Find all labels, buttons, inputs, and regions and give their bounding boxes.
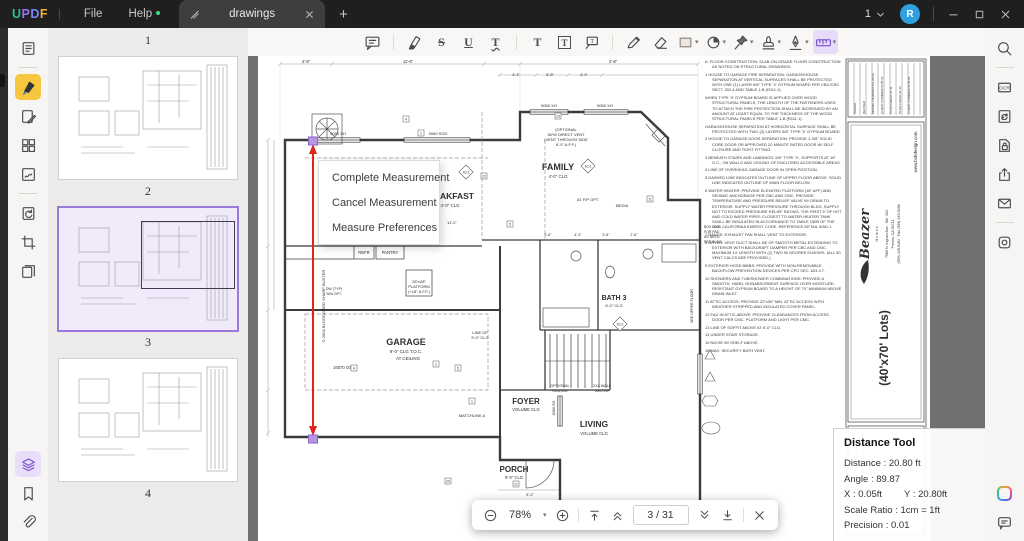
underline-icon: U (460, 34, 477, 51)
pdf-page[interactable]: FAMILY4'-0" CLGBREAKFAST4'-0" CLGGARAGE9… (258, 56, 930, 541)
annotate-icon (20, 79, 37, 96)
capture-icon (996, 234, 1013, 251)
shape-rect-button[interactable]: ▾ (675, 30, 701, 54)
plan-label: 4 (405, 117, 407, 121)
measure-button[interactable]: ▾ (813, 30, 839, 54)
sign-button[interactable] (15, 161, 41, 187)
plan-label: A2.3 (617, 322, 624, 326)
svg-text:T: T (590, 37, 594, 44)
plan-label: PORCH (500, 465, 529, 474)
plan-label: BATH 3 (602, 295, 627, 302)
highlight-button[interactable] (402, 30, 427, 54)
window-close-icon[interactable] (999, 8, 1012, 21)
plan-label: OPTIONAL (550, 384, 569, 388)
plan-note: 14 UNDER STAIR STORAGE. (705, 332, 842, 337)
convert-button[interactable] (15, 200, 41, 226)
plan-label: REFR (358, 250, 369, 255)
dropdown-caret-icon: ▾ (750, 38, 754, 46)
plan-label: DW (TYP) (326, 287, 342, 291)
plan-label: MRDGE TRANSMITTAL 05-22 (871, 73, 875, 114)
plan-note: 2 HOUSE TO GARAGE DOOR SEPARATION: PROVI… (705, 136, 842, 152)
strikethrough-button[interactable]: S (429, 30, 454, 54)
titlebar: UPDF | File Help drawings + 1 R (0, 0, 1024, 28)
plan-label: MEDIA (616, 203, 629, 208)
plan-label: 22 (482, 174, 486, 178)
ai-button[interactable] (992, 480, 1018, 506)
plan-label: A2.3 (585, 164, 592, 168)
logo-letter: P (22, 7, 31, 21)
minimize-icon[interactable] (947, 8, 960, 21)
plan-note: A. FLOOR CONSTRUCTION: SLAB-ON-GRADE FLO… (705, 59, 842, 69)
page-navigation-bar: 78% ▾ 3 / 31 (472, 500, 778, 530)
plan-label: 4 (353, 366, 355, 370)
plan-label: MATCHLINE A (459, 413, 486, 418)
divider (393, 35, 394, 50)
plan-notes-column: A. FLOOR CONSTRUCTION: SLAB-ON-GRADE FLO… (705, 59, 842, 537)
logo-letter: D (30, 7, 40, 21)
page-thumbnail-4[interactable] (59, 359, 237, 481)
plan-label: 4'-0" CLG (549, 174, 569, 179)
measure-icon (815, 34, 832, 51)
plan-label: REVISED (862, 100, 866, 114)
reader-button[interactable] (15, 35, 41, 61)
zoom-level[interactable]: 78% (506, 509, 534, 521)
extract-icon (20, 263, 37, 280)
email-button[interactable] (992, 190, 1018, 216)
capture-button[interactable] (992, 229, 1018, 255)
plan-label: 1 (420, 131, 422, 135)
nav-next-icon[interactable] (697, 508, 712, 523)
divider (19, 67, 37, 68)
divider (743, 508, 744, 522)
plan-label: 2X4 WALL (593, 384, 611, 388)
shape-rect-icon (677, 34, 694, 51)
textbox-icon: T (556, 34, 573, 51)
plan-note: 3 BENEATH STAIRS AND LANDINGS: 5/8" TYPE… (705, 155, 842, 165)
highlight-icon (406, 34, 423, 51)
updf-logo: UPDF (12, 7, 48, 21)
window-edge (0, 28, 8, 541)
pencil-button[interactable] (621, 30, 646, 54)
plan-label: 5'-2" (526, 493, 534, 497)
annotation-toolbar: SUTTTT▾▾▾▾▾▾ (248, 28, 985, 56)
thumbnail-page-number: 3 (145, 335, 151, 350)
dropdown-caret-icon: ▾ (695, 38, 699, 46)
dropdown-caret-icon: ▾ (778, 38, 782, 46)
plan-note: 9 EXTERIOR HOSE BIBBS: PROVIDE WITH NON-… (705, 263, 842, 273)
stamp-button[interactable]: ▾ (758, 30, 784, 54)
plan-label: 4'-4" (512, 72, 521, 77)
plan-label: 9'-0" CLG (471, 335, 488, 340)
plan-label: CLIENT COMMENTS 05-04 (907, 76, 911, 114)
compress-icon (996, 108, 1013, 125)
measure-handle-start[interactable] (309, 137, 318, 145)
plan-label: 3060 SG (552, 400, 556, 415)
layers-icon (20, 456, 37, 473)
protect-button[interactable] (992, 132, 1018, 158)
plan-label: FAMILY (542, 162, 574, 172)
squiggly-button[interactable]: T (483, 30, 508, 54)
textbox-button[interactable]: T (552, 30, 577, 54)
plan-label: 7580 N. Ingram Ave., Ste. 104 (885, 210, 889, 258)
plan-label: 8'-0" CLG (605, 303, 622, 308)
plan-note: 10 SHOWERS AND TUB/SHOWER COMBINATIONS: … (705, 276, 842, 297)
nav-prev-icon[interactable] (610, 508, 625, 523)
scale-ratio-row: Scale Ratio : 1cm = 1ft (844, 505, 985, 516)
plan-label: (40'x70' Lots) (877, 310, 891, 386)
plan-label: 11'-6" (403, 59, 414, 64)
plan-label: 20 (446, 479, 450, 483)
maximize-icon[interactable] (973, 8, 986, 21)
plan-label: 5'-8" (546, 72, 555, 77)
plan-note: 16 MAX. SECURITY BATH VENT. (705, 348, 842, 353)
plan-label: 11 (648, 197, 652, 201)
crop-button[interactable] (15, 229, 41, 255)
note-icon (364, 34, 381, 51)
plan-note: 4 LINE OF OVERHEAD GARAGE DOOR IN OPEN P… (705, 167, 842, 172)
page-number-input[interactable]: 3 / 31 (633, 505, 689, 525)
menu-file[interactable]: File (71, 8, 116, 20)
chevron-down-icon (874, 8, 887, 21)
measurement-context-menu: Complete Measurement Cancel Measurement … (318, 160, 440, 245)
email-icon (996, 195, 1013, 212)
callout-button[interactable]: T (579, 30, 604, 54)
edit-icon (20, 108, 37, 125)
plan-label: (+18" A.F.F.) (408, 289, 430, 294)
attachment-button[interactable] (15, 509, 41, 535)
plan-label: 5060 XO (541, 103, 557, 108)
zoom-dropdown-caret-icon[interactable]: ▾ (543, 511, 547, 519)
bookmark-button[interactable] (15, 480, 41, 506)
extract-button[interactable] (15, 258, 41, 284)
plan-label: 5 (509, 222, 511, 226)
plan-label: RAILING (552, 389, 567, 393)
menu-help[interactable]: Help (115, 8, 165, 20)
shape-circle-button[interactable]: ▾ (703, 30, 729, 54)
plan-label: 5 (457, 366, 459, 370)
xy-row: X : 0.05ftY : 20.80ft (844, 489, 985, 500)
nav-first-icon[interactable] (587, 508, 602, 523)
plan-label: 4'-0" CLG (441, 203, 461, 208)
plan-label: AT CEILING (396, 356, 421, 361)
plan-label: ISSUED (853, 102, 857, 114)
organize-button[interactable] (15, 132, 41, 158)
search-icon (996, 40, 1013, 57)
plan-label: 21 (514, 482, 518, 486)
share-button[interactable] (992, 161, 1018, 187)
plan-label: FOYER (512, 397, 540, 406)
dropdown-caret-icon: ▾ (833, 38, 837, 46)
crop-icon (20, 234, 37, 251)
plan-label: 5060 XO (597, 103, 613, 108)
logo-letter: U (12, 7, 22, 21)
ocr-button[interactable]: OCR (992, 74, 1018, 100)
chat-button[interactable] (992, 509, 1018, 535)
plan-label: PLAN CHECK 07-11 (889, 86, 893, 114)
stamp-icon (760, 34, 777, 51)
plan-label: PANTRY (382, 250, 399, 255)
plan-label: 1 (471, 399, 473, 403)
menu-item-complete-measurement[interactable]: Complete Measurement (319, 165, 439, 190)
nav-last-icon[interactable] (720, 508, 735, 523)
right-sidebar: OCR (985, 28, 1024, 541)
plan-label: 11'-2" (447, 220, 457, 225)
plan-label: 4'-4" (580, 72, 589, 77)
plan-label: 2 (435, 362, 437, 366)
page-thumbnail-2[interactable] (59, 57, 237, 179)
plan-label: 4'-6" (302, 59, 311, 64)
logo-letter: F (40, 7, 48, 21)
plan-note: 12 FAU IN ATTIC ABOVE: PROVIDE CLEARANCE… (705, 312, 842, 322)
plan-note: 8 DRYER: VENT DUCT SHALL BE OF SMOOTH ME… (705, 240, 842, 261)
plan-label: 9'-0" CLG (505, 475, 523, 480)
sign-icon (20, 166, 37, 183)
plan-label: LIVING (580, 419, 609, 429)
plan-label: © 2004 BLOODGOOD SHARP BUSTER (321, 270, 326, 343)
attachment-icon (20, 514, 37, 531)
plan-label: H o m e s (875, 226, 879, 241)
avatar[interactable]: R (900, 4, 920, 24)
divider: | (58, 8, 61, 20)
pencil-icon (625, 34, 642, 51)
edit-button[interactable] (15, 103, 41, 129)
plan-label: 6'-0" A.F.F.) (556, 142, 577, 147)
distance-row: Distance : 20.80 ft (844, 458, 985, 469)
menu-item-measure-preferences[interactable]: Measure Preferences (319, 215, 439, 240)
divider (578, 508, 579, 522)
callout-icon: T (583, 34, 600, 51)
plan-note: 1 HOUSE TO GARAGE FIRE SEPARATION: GARAG… (705, 72, 842, 93)
bookmark-icon (20, 485, 37, 502)
new-tab-button[interactable]: + (339, 6, 348, 23)
organize-icon (20, 137, 37, 154)
window-count-dropdown[interactable]: 1 (865, 8, 887, 21)
plan-label: 4'-3" (574, 233, 582, 237)
plan-label: VOLUME CLG (512, 407, 539, 412)
thumbnail-page-number: 2 (145, 184, 151, 199)
divider (933, 7, 934, 21)
dropdown-caret-icon: ▾ (723, 38, 727, 46)
plan-label: 9'-0" CLG T.O.C. (390, 349, 423, 354)
divider (516, 35, 517, 50)
search-button[interactable] (992, 35, 1018, 61)
svg-text:OCR: OCR (999, 85, 1010, 91)
plan-note: 7 RANGE: EXHAUST FAN SHALL VENT TO EXTER… (705, 232, 842, 237)
plan-label: Fresno, CA 93711 (891, 220, 895, 249)
tab-drawings[interactable]: drawings (179, 0, 325, 28)
tab-icon (188, 8, 201, 21)
dropdown-caret-icon: ▾ (805, 38, 809, 46)
plan-label: CLIENT COMMENTS 05-31 (880, 76, 884, 114)
reader-icon (20, 40, 37, 57)
plan-label: www.bsbdesign.com (913, 131, 918, 172)
divider (996, 67, 1014, 68)
signature-button[interactable]: ▾ (785, 30, 811, 54)
precision-row: Precision : 0.01 (844, 520, 985, 531)
chat-icon (996, 514, 1013, 531)
plan-note: 15 NICHE W/ SHELF ABOVE. (705, 340, 842, 345)
eraser-button[interactable] (648, 30, 673, 54)
plan-label: 3'-8" (602, 233, 610, 237)
plan-label: (559) 449-9494 · Fax (559) 449-9498 (897, 204, 901, 263)
plan-label: 2'-6" (630, 233, 638, 237)
close-icon[interactable] (752, 508, 767, 523)
plan-note: GARAGE/HOUSE SEPARATION AT HORIZONTAL SU… (705, 124, 842, 134)
plan-label: PLAN CHECK 01-13 (898, 86, 902, 114)
underline-button[interactable]: U (456, 30, 481, 54)
divider (612, 35, 613, 50)
squiggly-icon: T (487, 34, 504, 51)
plan-label: AT F/P OPT. (577, 197, 599, 202)
compress-button[interactable] (992, 103, 1018, 129)
left-sidebar (8, 28, 48, 541)
eraser-icon (652, 34, 669, 51)
ocr-icon: OCR (996, 79, 1013, 96)
text-icon: T (529, 34, 546, 51)
plan-label: Beazer (858, 208, 873, 260)
ai-icon (996, 485, 1013, 502)
document-canvas[interactable]: FAMILY4'-0" CLGBREAKFAST4'-0" CLGGARAGE9… (248, 56, 985, 541)
plan-label: W/A OPT. (326, 292, 342, 296)
thumbnail-panel: 1234 (48, 28, 248, 541)
tab-close-icon[interactable] (303, 8, 316, 21)
pin-button[interactable]: ▾ (730, 30, 756, 54)
distance-measurement-line[interactable] (309, 137, 318, 443)
layers-button[interactable] (15, 451, 41, 477)
plan-label: 23 (556, 114, 560, 118)
plan-label: BELOW (595, 389, 609, 393)
plan-label: 5050 SH (330, 131, 346, 136)
measure-handle-end[interactable] (309, 435, 318, 443)
plan-label: VOLUME CLG (580, 431, 607, 436)
plan-note: 13 LINE OF SOFFIT ABOVE AT 8'-0" CLG. (705, 325, 842, 330)
distance-tool-panel: Distance Tool Distance : 20.80 ft Angle … (833, 428, 985, 541)
menu-item-cancel-measurement[interactable]: Cancel Measurement (319, 190, 439, 215)
plan-note: 6 WATER HEATER: PROVIDE ELEVATED PLATFOR… (705, 188, 842, 230)
plan-label: SEE UPPER FLOOR (690, 289, 694, 323)
plan-label: 5'-8" (544, 233, 552, 237)
help-badge-dot (156, 11, 160, 15)
note-button[interactable] (360, 30, 385, 54)
pin-icon (732, 34, 749, 51)
convert-icon (20, 205, 37, 222)
divider (996, 222, 1014, 223)
shape-circle-icon (705, 34, 722, 51)
share-icon (996, 166, 1013, 183)
thumbnail-page-number: 1 (145, 33, 151, 48)
plan-label: A2.3 (463, 170, 470, 174)
protect-icon (996, 137, 1013, 154)
distance-tool-title: Distance Tool (844, 437, 985, 449)
angle-row: Angle : 89.87 (844, 474, 985, 485)
text-button[interactable]: T (525, 30, 550, 54)
plan-label: 5060 SGD (429, 131, 448, 136)
tab-label: drawings (201, 8, 303, 20)
signature-icon (787, 34, 804, 51)
strikethrough-icon: S (433, 34, 450, 51)
zoom-in-icon[interactable] (555, 508, 570, 523)
thumbnail-page-number: 4 (145, 486, 151, 501)
zoom-out-icon[interactable] (483, 508, 498, 523)
plan-label: 2'-8" (609, 59, 618, 64)
divider (19, 193, 37, 194)
plan-note: 5 DASHED LINE INDICATES OUTLINE OF UPPER… (705, 175, 842, 185)
plan-note: 11 ATTIC ACCESS: PROVIDE 22"x30" MIN. AT… (705, 299, 842, 309)
plan-note: WHEN TYPE 'X' GYPSUM BOARD IS APPLIED OV… (705, 95, 842, 121)
annotate-button[interactable] (15, 74, 41, 100)
page-thumbnail-3[interactable] (59, 208, 237, 330)
plan-label: GARAGE (386, 337, 426, 347)
